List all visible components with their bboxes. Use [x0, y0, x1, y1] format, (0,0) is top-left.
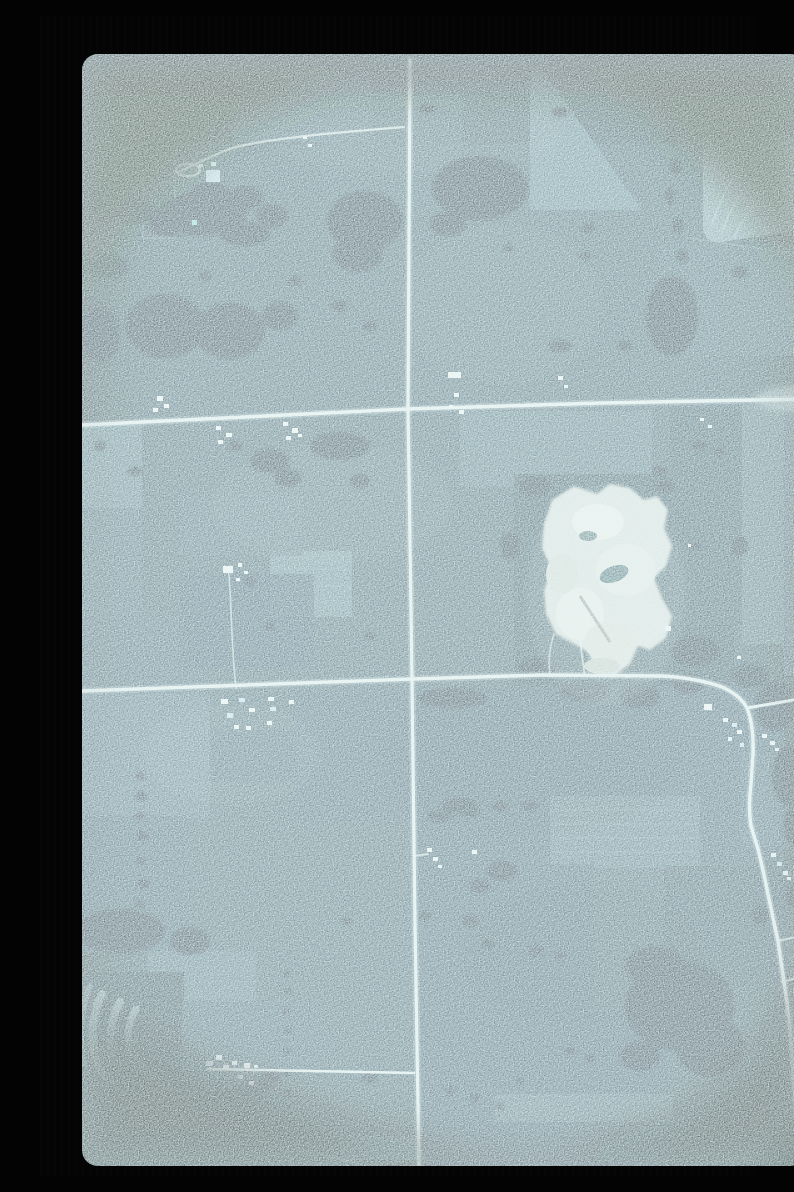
farmstead-west-roadside-north	[153, 396, 169, 412]
slide-scan: { "scene": { "kind": "vertical aerial ph…	[0, 0, 794, 1192]
farmstead-west-roadside-2	[283, 422, 302, 440]
slide-mount	[40, 16, 754, 1176]
farm-pond-dot	[192, 220, 197, 225]
quarry-outbuilding	[688, 544, 691, 547]
quarry-building	[665, 626, 671, 631]
aerial-photo-canvas	[82, 54, 794, 1166]
quarry-pond-small	[579, 531, 597, 541]
aerial-photo	[82, 54, 794, 1166]
farmstead-west-roadside-south	[216, 426, 232, 444]
